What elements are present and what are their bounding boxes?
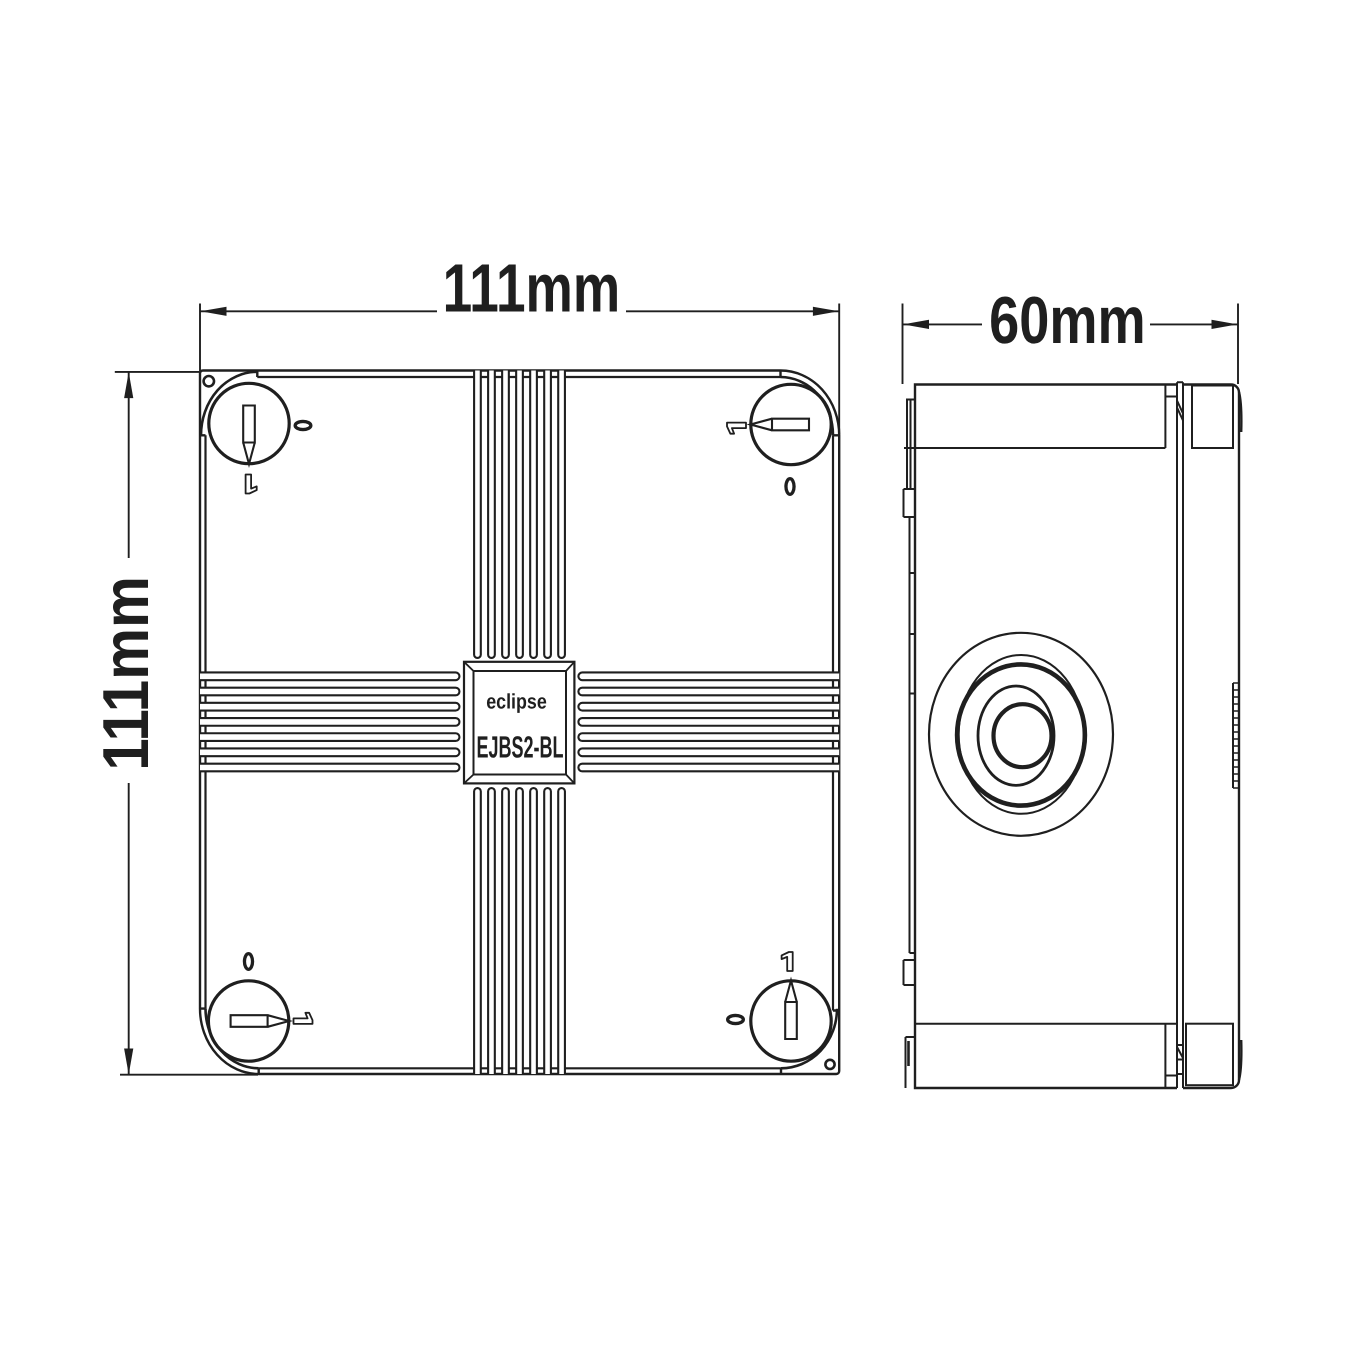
svg-text:eclipse: eclipse <box>486 691 547 714</box>
svg-text:EJBS2-BL: EJBS2-BL <box>476 730 563 765</box>
svg-text:60mm: 60mm <box>989 284 1146 358</box>
svg-text:111mm: 111mm <box>443 250 621 326</box>
svg-text:111mm: 111mm <box>89 576 162 771</box>
